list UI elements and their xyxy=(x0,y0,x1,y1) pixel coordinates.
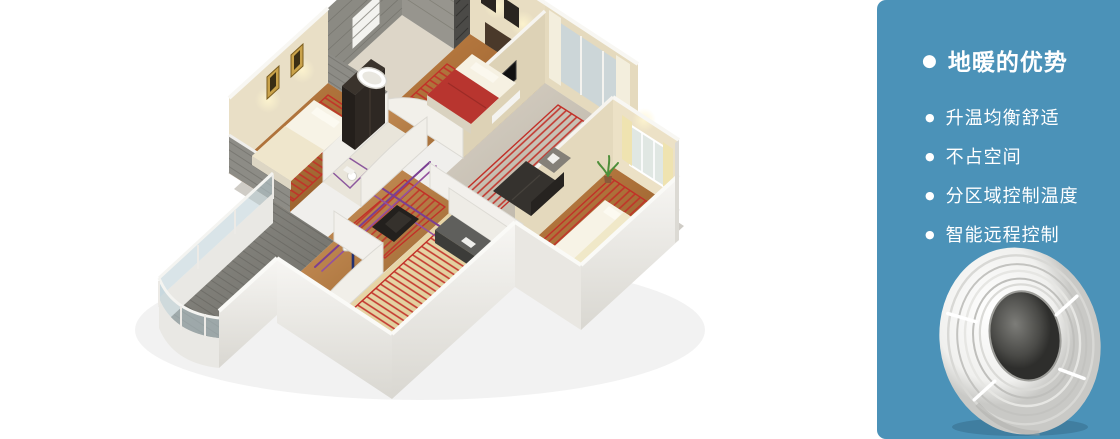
list-item: ● 分区域控制温度 xyxy=(925,182,1120,208)
curtain xyxy=(549,10,561,86)
curtain-yellow xyxy=(622,115,632,166)
panel-title: 地暖的优势 xyxy=(948,43,1068,77)
floor-heating-banner: ● 地暖的优势 ● 升温均衡舒适 ● 不占空间 ● 分区域控制温度 ● 智能远程… xyxy=(0,0,1120,439)
bullet-dot-icon: ● xyxy=(925,229,936,240)
apartment-3d-illustration xyxy=(0,0,880,439)
bullet-dot-icon: ● xyxy=(925,151,936,162)
list-item-label: 不占空间 xyxy=(946,143,1022,169)
panel-title-row: ● 地暖的优势 xyxy=(922,43,1120,77)
advantage-list: ● 升温均衡舒适 ● 不占空间 ● 分区域控制温度 ● 智能远程控制 xyxy=(925,104,1120,247)
pipe-coil-image xyxy=(925,239,1115,439)
list-item-label: 升温均衡舒适 xyxy=(946,104,1060,130)
list-item: ● 升温均衡舒适 xyxy=(925,104,1120,130)
bullet-dot-icon: ● xyxy=(922,53,938,70)
pipe-coil xyxy=(925,239,1115,439)
list-item: ● 不占空间 xyxy=(925,143,1120,169)
bullet-dot-icon: ● xyxy=(925,112,936,123)
info-panel: ● 地暖的优势 ● 升温均衡舒适 ● 不占空间 ● 分区域控制温度 ● 智能远程… xyxy=(877,0,1120,439)
bullet-dot-icon: ● xyxy=(925,190,936,201)
list-item-label: 分区域控制温度 xyxy=(946,182,1079,208)
